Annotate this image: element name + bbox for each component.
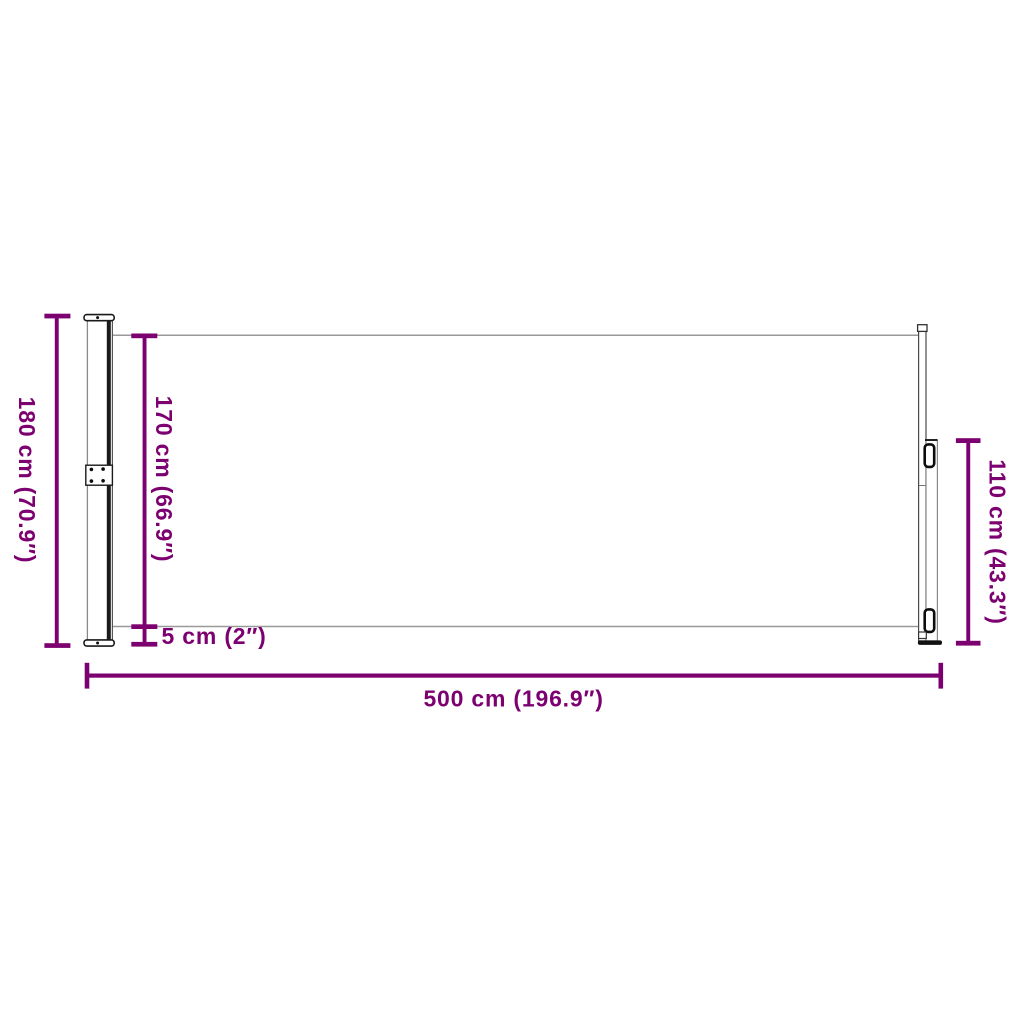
svg-text:180 cm (70.9″): 180 cm (70.9″) [14,397,40,564]
svg-text:500 cm (196.9″): 500 cm (196.9″) [423,685,603,711]
svg-text:110 cm (43.3″): 110 cm (43.3″) [985,459,1011,624]
svg-text:170 cm (66.9″): 170 cm (66.9″) [151,396,177,563]
svg-text:5 cm (2″): 5 cm (2″) [162,623,267,649]
